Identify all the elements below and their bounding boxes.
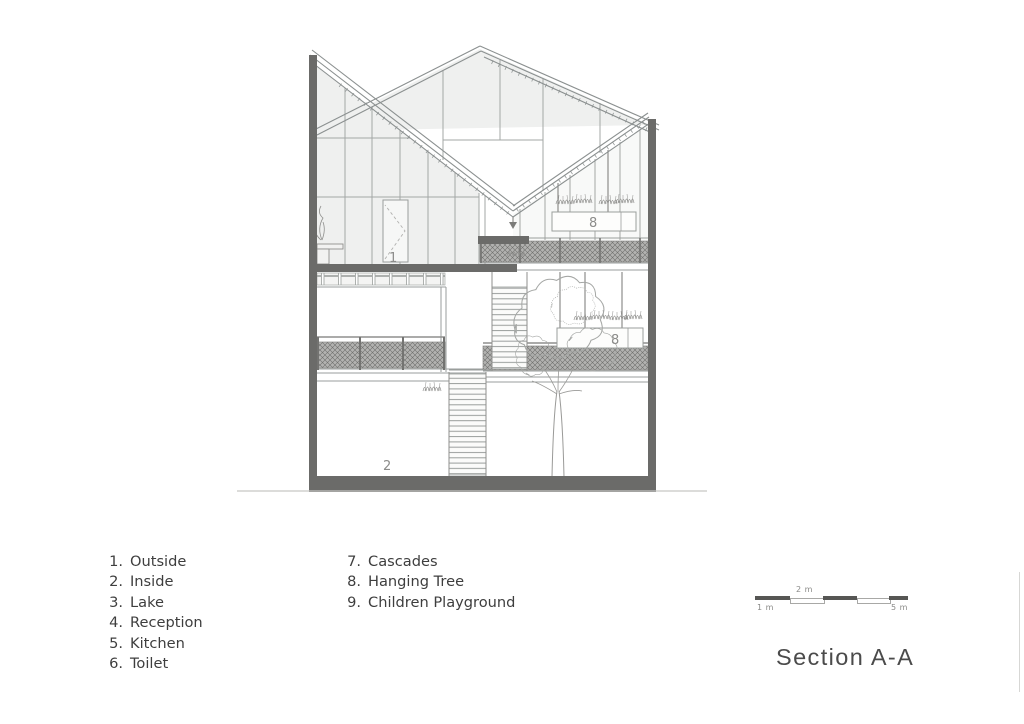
label-lower-room: 2 xyxy=(383,459,391,474)
legend-item-toilet: 6.Toilet xyxy=(103,654,203,674)
scale-label-2m: 2 m xyxy=(796,585,813,594)
label-upper-planter: 8 xyxy=(589,216,597,231)
legend-item-inside: 2.Inside xyxy=(103,572,203,592)
legend-item-cascades: 7.Cascades xyxy=(341,552,515,572)
scale-segment-light xyxy=(790,598,825,604)
legend-item-kitchen: 5.Kitchen xyxy=(103,634,203,654)
section-title: Section A-A xyxy=(776,644,914,671)
label-door: 1 xyxy=(389,251,397,266)
page-edge-line xyxy=(1019,572,1020,692)
label-lower-planter: 8 xyxy=(611,333,619,348)
railing-mid-left xyxy=(317,337,445,370)
legend-column-2: 7.Cascades 8.Hanging Tree 9.Children Pla… xyxy=(341,552,515,613)
legend-item-children-playground: 9.Children Playground xyxy=(341,593,515,613)
architectural-sheet: 1 2 8 8 1.Outside 2.Inside 3.Lake 4.Rece… xyxy=(0,0,1024,724)
glazing-panels xyxy=(316,49,650,264)
scale-label-1m: 1 m xyxy=(757,603,774,612)
legend-item-reception: 4.Reception xyxy=(103,613,203,633)
scale-segment-light xyxy=(857,598,891,604)
stairs-lower-flight xyxy=(449,372,486,476)
scale-label-5m: 5 m xyxy=(891,603,908,612)
legend-item-hanging-tree: 8.Hanging Tree xyxy=(341,572,515,592)
scale-segment-dark xyxy=(755,596,790,600)
scale-segment-dark xyxy=(823,596,857,600)
joist-band xyxy=(317,273,445,285)
legend-item-lake: 3.Lake xyxy=(103,593,203,613)
scale-segment-dark xyxy=(889,596,908,600)
legend-column-1: 1.Outside 2.Inside 3.Lake 4.Reception 5.… xyxy=(103,552,203,674)
legend-item-outside: 1.Outside xyxy=(103,552,203,572)
shrub-near-stair xyxy=(423,382,441,391)
